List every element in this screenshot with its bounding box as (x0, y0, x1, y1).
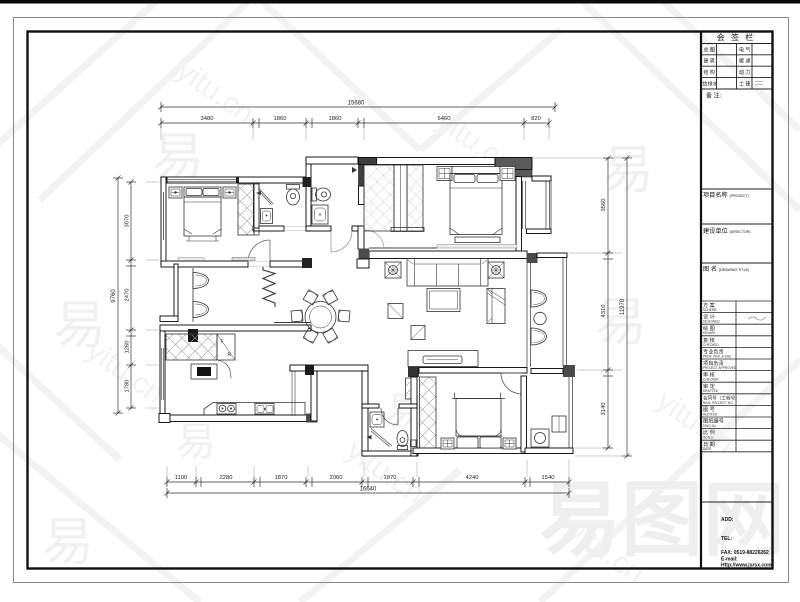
svg-text:9760: 9760 (111, 289, 117, 303)
svg-text:R: R (228, 352, 232, 358)
svg-text:SCHEME: SCHEME (703, 308, 717, 312)
svg-text:SCALE: SCALE (703, 436, 713, 440)
svg-text:1860: 1860 (274, 116, 287, 122)
svg-text:1860: 1860 (329, 116, 342, 122)
svg-text:1780: 1780 (125, 380, 131, 393)
svg-text:DATE: DATE (703, 447, 711, 451)
svg-text:项目名称 (PROJECT): 项目名称 (PROJECT) (703, 191, 749, 199)
svg-text:PROJECT APPROVED: PROJECT APPROVED (703, 366, 737, 370)
svg-text:易: 易 (602, 142, 654, 200)
svg-text:Http://www.jsrsx.com: Http://www.jsrsx.com (721, 563, 772, 569)
svg-text:DRAFTED: DRAFTED (703, 389, 719, 393)
svg-text:REAL PROJECT NO.: REAL PROJECT NO. (703, 401, 734, 405)
svg-text:易: 易 (176, 420, 216, 464)
svg-text:2470: 2470 (125, 289, 131, 302)
svg-text:DRAWN: DRAWN (703, 331, 716, 335)
svg-text:ADD:: ADD: (721, 517, 734, 523)
svg-text:1100: 1100 (175, 475, 187, 481)
svg-text:FAX: 0519-88226262: FAX: 0519-88226262 (721, 550, 769, 556)
svg-text:DESIGNED: DESIGNED (703, 320, 720, 324)
svg-text:2280: 2280 (220, 475, 233, 481)
svg-text:DWG No: DWG No (703, 424, 716, 428)
svg-text:6460: 6460 (438, 116, 451, 122)
svg-text:PROF. PER. A-DGE: PROF. PER. A-DGE (703, 354, 732, 358)
svg-text:3560: 3560 (601, 199, 607, 212)
svg-text:3480: 3480 (201, 116, 214, 122)
svg-text:给排水: 给排水 (703, 81, 718, 88)
svg-text:TEL:: TEL: (721, 536, 732, 542)
svg-text:15680: 15680 (348, 101, 365, 107)
svg-text:图 名 (DRAWING TITLE): 图 名 (DRAWING TITLE) (703, 265, 749, 273)
svg-text:1870: 1870 (384, 475, 397, 481)
svg-text:yitu.cn: yitu.cn (170, 54, 260, 131)
svg-text:820: 820 (531, 116, 541, 122)
svg-text:16640: 16640 (360, 487, 377, 493)
svg-text:1260: 1260 (125, 341, 131, 354)
svg-text:电 气: 电 气 (739, 46, 750, 53)
svg-text:11970: 11970 (620, 298, 626, 315)
svg-text:3140: 3140 (601, 403, 607, 416)
svg-text:易: 易 (42, 514, 94, 572)
svg-text:总 图: 总 图 (704, 46, 715, 53)
svg-text:AUDITED: AUDITED (703, 412, 718, 416)
svg-text:1540: 1540 (542, 475, 555, 481)
svg-text:CHECKER: CHECKER (703, 378, 719, 382)
svg-text:2060: 2060 (330, 475, 343, 481)
svg-text:F: F (221, 339, 224, 345)
svg-text:结 构: 结 构 (704, 69, 715, 76)
svg-text:动 力: 动 力 (739, 69, 750, 76)
svg-text:3070: 3070 (125, 215, 131, 228)
svg-text:备 注:: 备 注: (706, 92, 722, 100)
svg-text:4310: 4310 (601, 305, 607, 318)
svg-text:暖 通: 暖 通 (739, 58, 750, 65)
svg-text:建 筑: 建 筑 (704, 58, 715, 65)
svg-text:建设单位 (DIRECTOR): 建设单位 (DIRECTOR) (703, 227, 751, 235)
svg-text:土 建: 土 建 (739, 81, 750, 88)
svg-text:会 签 栏: 会 签 栏 (717, 32, 755, 42)
svg-text:1870: 1870 (275, 475, 288, 481)
svg-text:CHECKED: CHECKED (703, 343, 719, 347)
svg-text:4240: 4240 (466, 475, 479, 481)
